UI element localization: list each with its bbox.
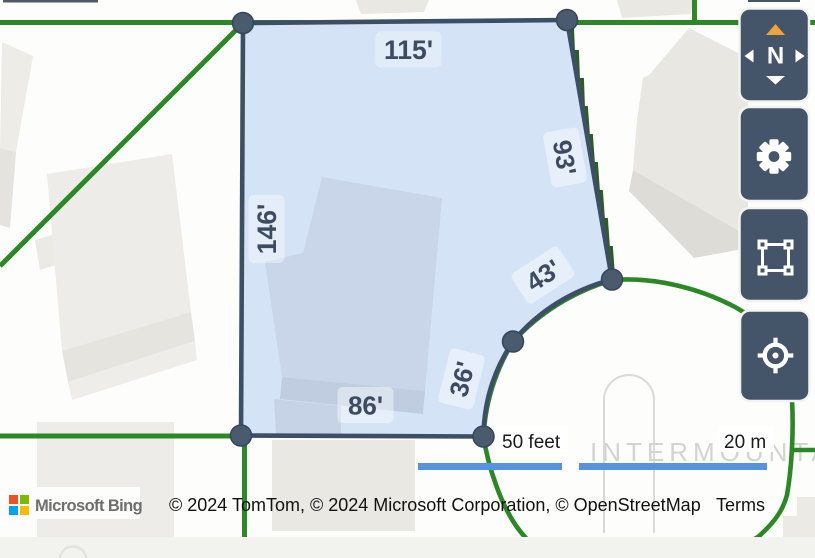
svg-text:50 feet: 50 feet	[502, 432, 561, 453]
svg-text:115': 115'	[384, 35, 433, 65]
svg-text:146': 146'	[252, 204, 282, 255]
svg-text:93': 93'	[547, 138, 583, 178]
svg-text:N: N	[767, 43, 784, 70]
svg-text:86': 86'	[348, 391, 383, 421]
svg-text:INTERMOUNTAIN: INTERMOUNTAIN	[590, 437, 815, 467]
svg-text:Microsoft Bing: Microsoft Bing	[35, 497, 142, 515]
svg-text:20 m: 20 m	[724, 432, 766, 453]
svg-text:Terms: Terms	[716, 495, 765, 515]
svg-text:© 2024 TomTom, © 2024 Microsof: © 2024 TomTom, © 2024 Microsoft Corporat…	[169, 495, 701, 515]
